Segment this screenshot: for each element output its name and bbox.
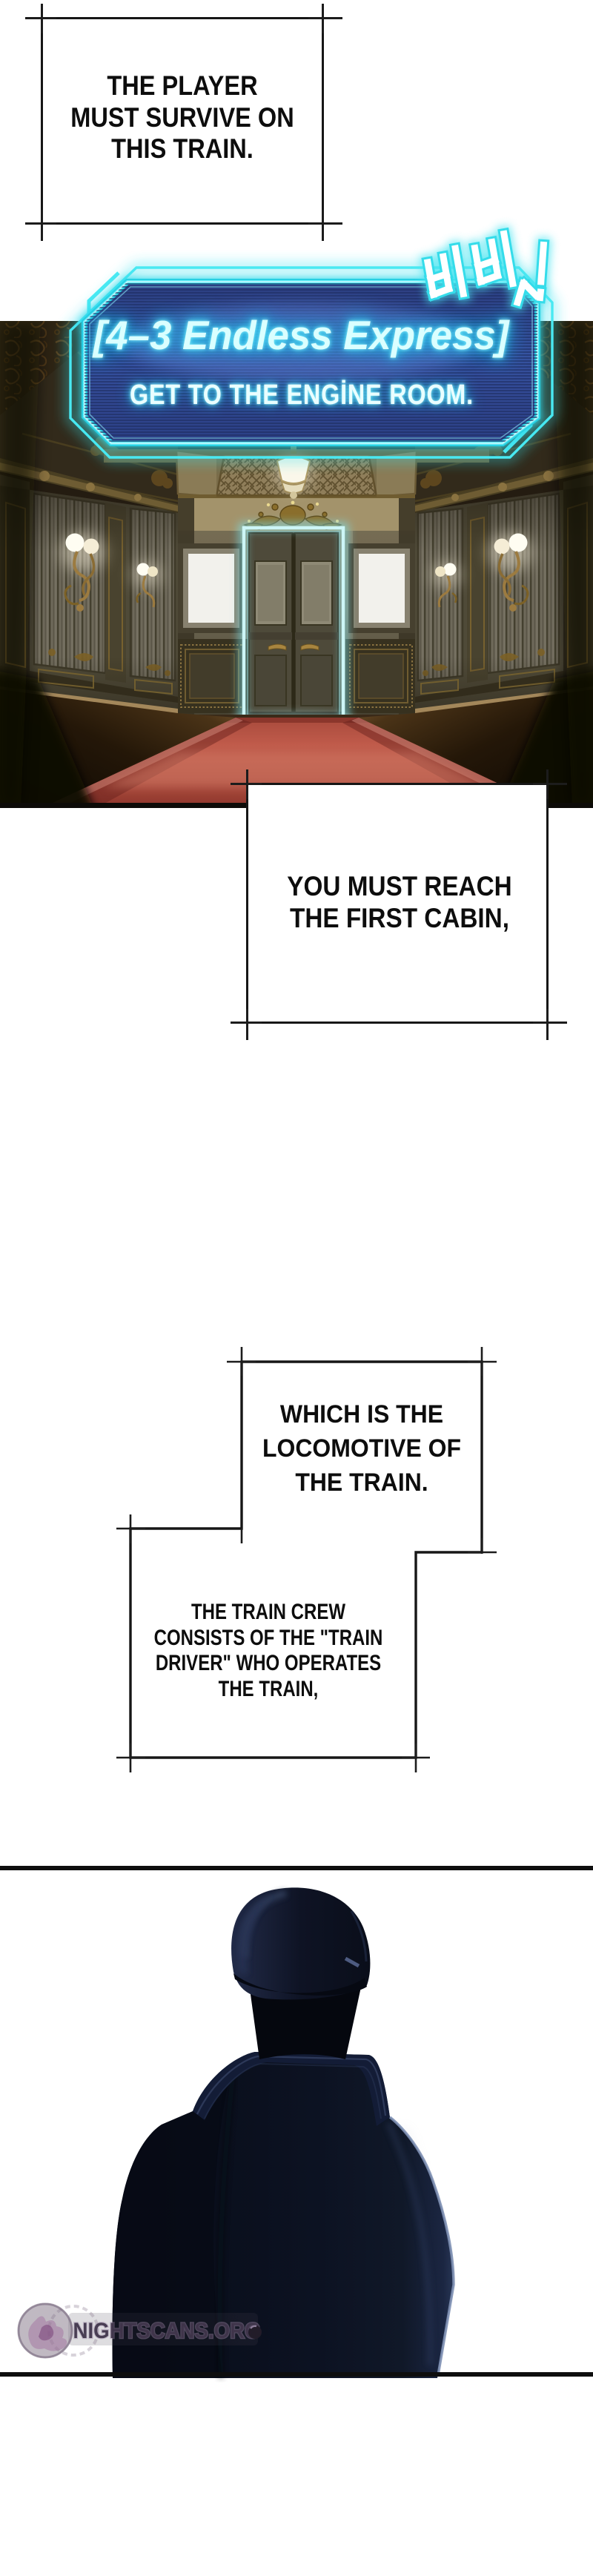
svg-text:NIGHTSCANS.ORG: NIGHTSCANS.ORG [73, 2319, 261, 2343]
